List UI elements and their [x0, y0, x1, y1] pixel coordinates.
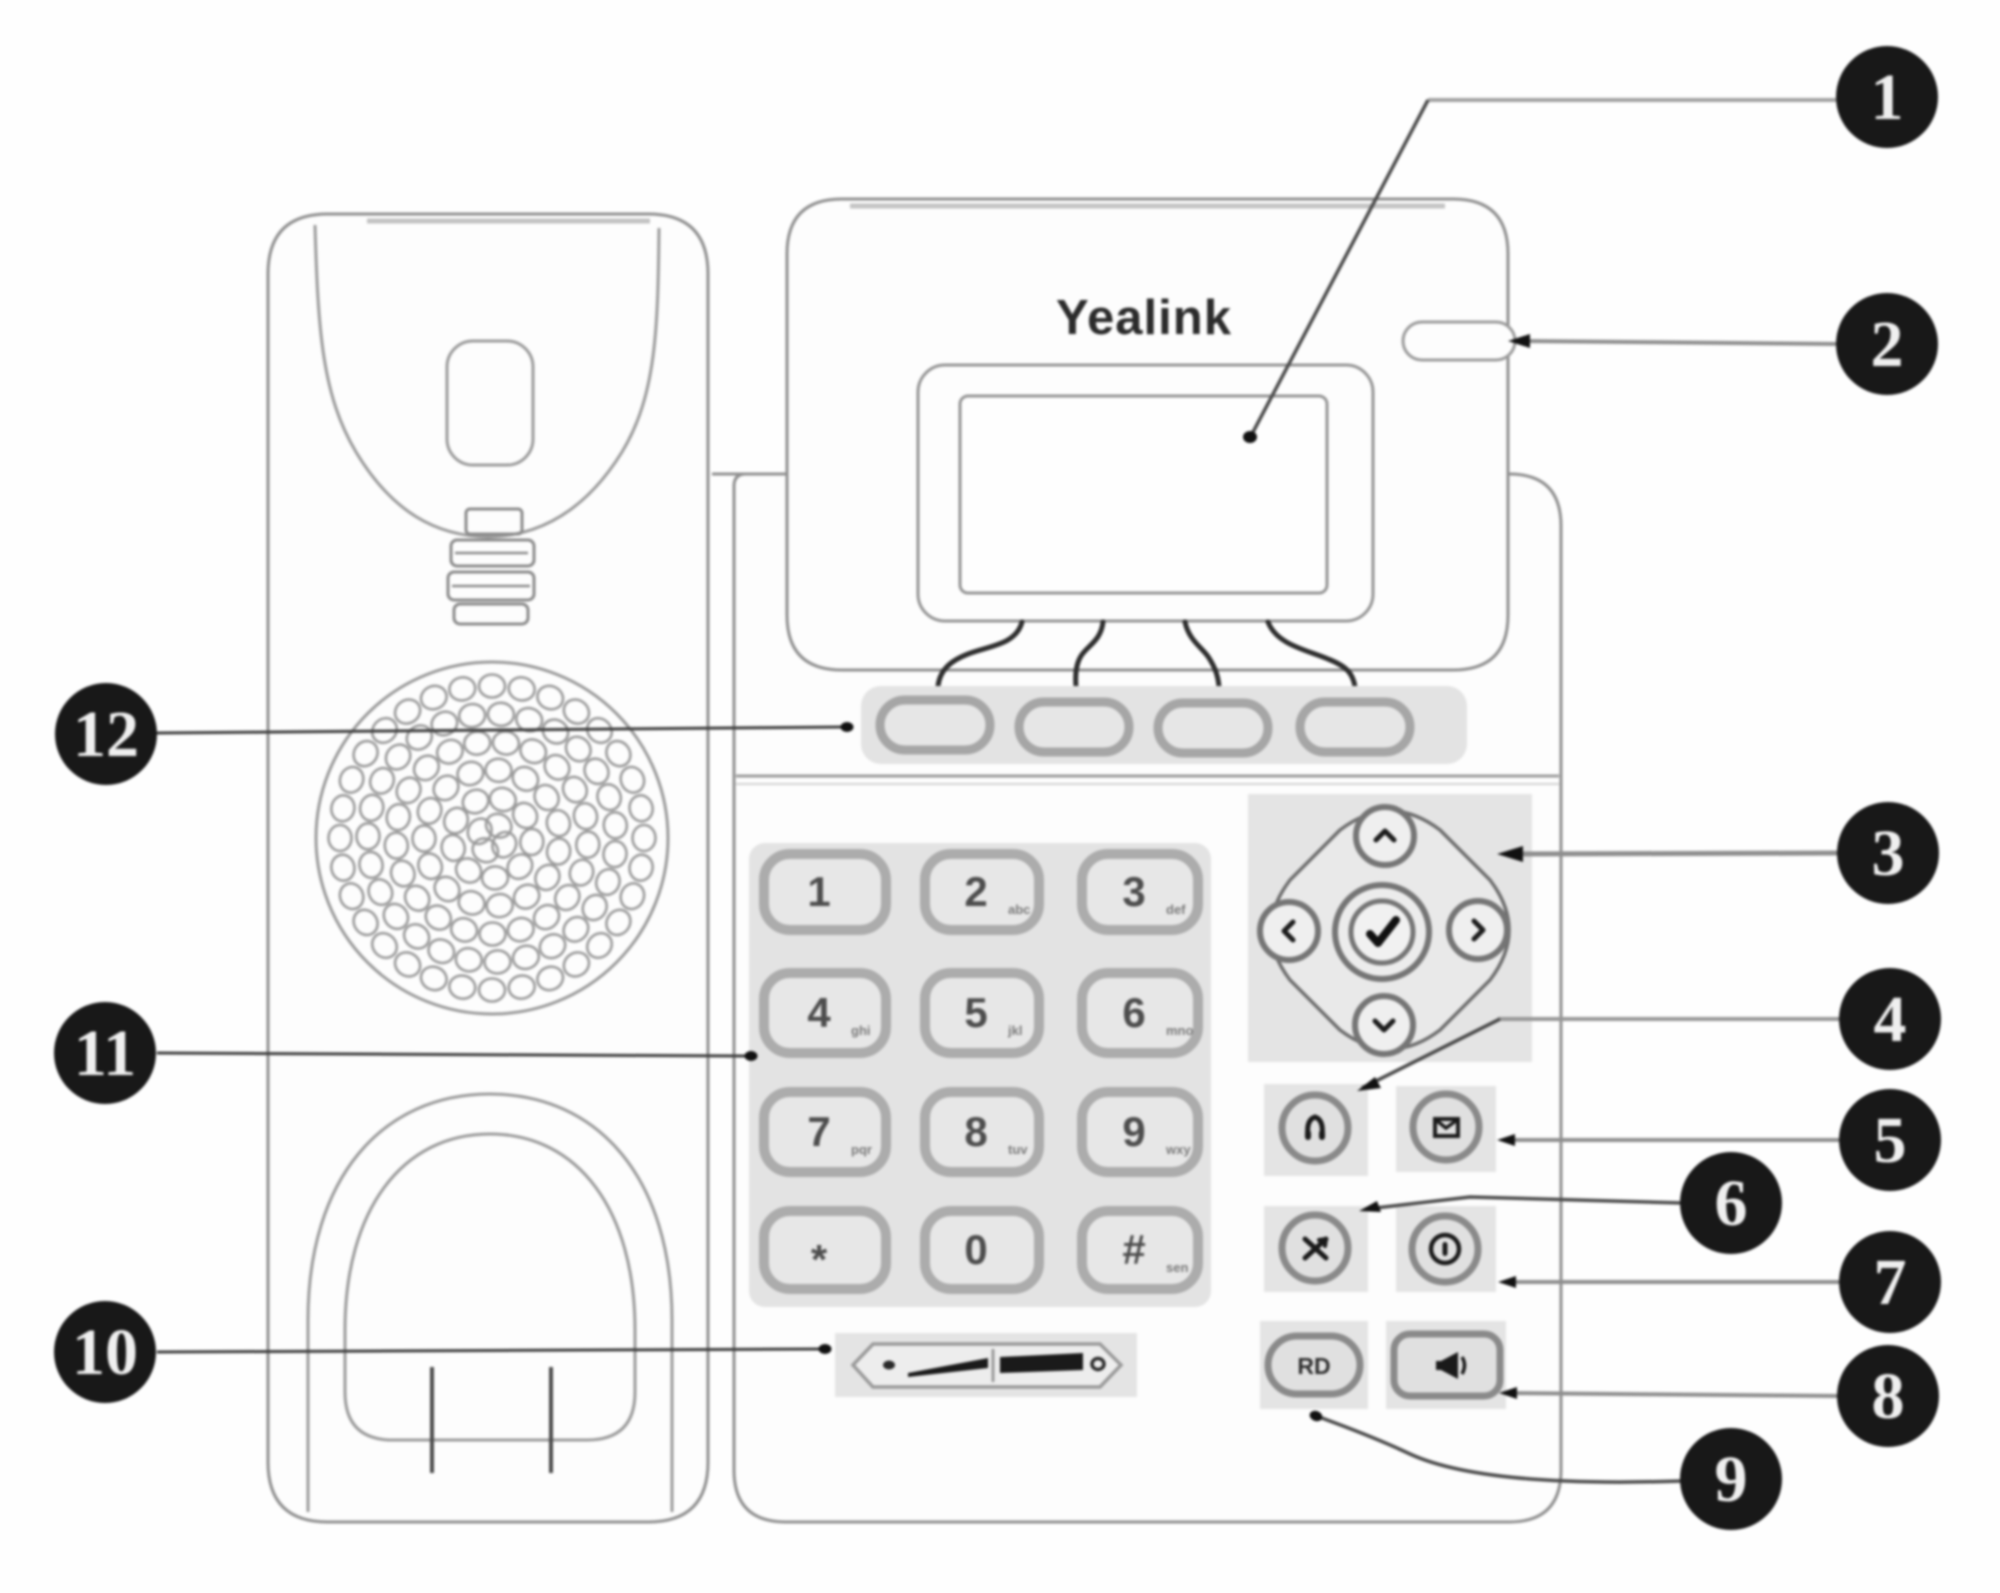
svg-text:6: 6: [1715, 1167, 1748, 1240]
svg-text:tuv: tuv: [1008, 1142, 1028, 1157]
svg-text:7: 7: [807, 1108, 830, 1155]
svg-text:10: 10: [72, 1316, 138, 1389]
svg-text:8: 8: [1872, 1360, 1905, 1433]
svg-text:4: 4: [807, 989, 831, 1036]
svg-text:#: #: [1122, 1226, 1145, 1273]
svg-text:sen: sen: [1166, 1260, 1188, 1275]
svg-text:5: 5: [1874, 1104, 1907, 1177]
svg-text:pqr: pqr: [851, 1142, 872, 1157]
svg-text:3: 3: [1122, 868, 1145, 915]
svg-text:7: 7: [1874, 1246, 1907, 1319]
svg-text:12: 12: [73, 698, 139, 771]
svg-text:mno: mno: [1166, 1023, 1194, 1038]
svg-text:9: 9: [1715, 1443, 1748, 1516]
svg-text:11: 11: [74, 1017, 136, 1090]
svg-text:abc: abc: [1008, 902, 1030, 917]
svg-text:*: *: [811, 1236, 828, 1283]
svg-text:3: 3: [1872, 817, 1905, 890]
svg-text:def: def: [1166, 902, 1186, 917]
svg-text:2: 2: [1871, 308, 1904, 381]
svg-text:8: 8: [964, 1108, 987, 1155]
svg-text:6: 6: [1122, 989, 1145, 1036]
svg-text:Yealink: Yealink: [1056, 291, 1232, 345]
svg-text:RD: RD: [1297, 1353, 1330, 1379]
svg-text:jkl: jkl: [1007, 1023, 1022, 1038]
svg-text:1: 1: [1871, 61, 1904, 134]
svg-text:4: 4: [1874, 983, 1907, 1056]
svg-text:ghi: ghi: [851, 1023, 871, 1038]
svg-text:1: 1: [807, 868, 830, 915]
svg-text:5: 5: [964, 989, 987, 1036]
svg-text:wxy: wxy: [1165, 1142, 1191, 1157]
svg-text:9: 9: [1122, 1108, 1145, 1155]
svg-text:0: 0: [964, 1226, 987, 1273]
svg-text:2: 2: [964, 868, 987, 915]
